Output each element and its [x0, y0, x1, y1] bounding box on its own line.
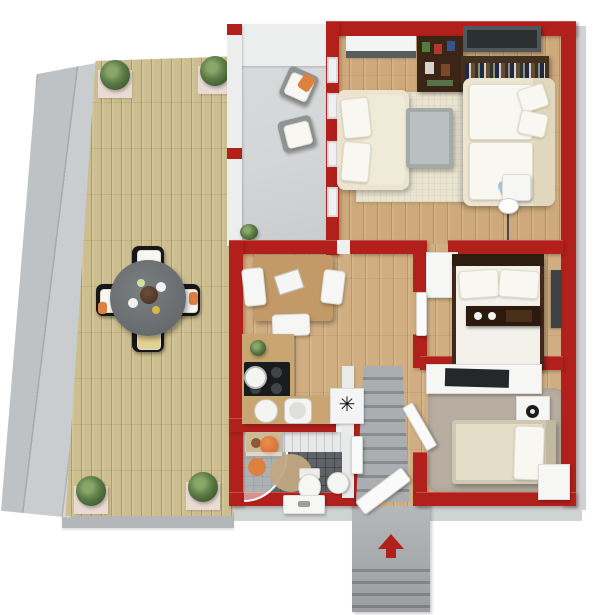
side-table — [502, 174, 531, 201]
planter-top-left — [98, 64, 134, 98]
book — [422, 42, 430, 52]
headboard — [452, 254, 544, 266]
book — [441, 64, 450, 76]
chair-cushion — [283, 120, 314, 150]
patio-west-railing — [227, 24, 242, 246]
sink-round — [254, 399, 278, 423]
entrance-arrow-icon — [378, 534, 404, 560]
sink-bowl — [289, 402, 306, 419]
planter-bottom-left — [74, 478, 110, 514]
counter-plant — [250, 340, 266, 356]
kitchen-door-gap — [337, 240, 350, 254]
toilet — [298, 468, 319, 498]
coat-rack-panel: ✳ — [330, 388, 364, 424]
bowl-green — [137, 279, 145, 287]
bedroom1-bed — [452, 254, 544, 370]
bidet — [327, 472, 349, 494]
shower-mat — [248, 458, 266, 476]
right-outer-wall-face — [576, 26, 586, 510]
bed-pillow — [458, 269, 500, 300]
bedroom2-wardrobe — [538, 464, 570, 500]
book — [427, 80, 453, 86]
window-alcove — [346, 36, 416, 58]
patio-north-wall — [240, 24, 332, 66]
two-seat-sofa — [337, 90, 409, 190]
burner — [271, 367, 282, 378]
bedroom1-door — [416, 292, 427, 336]
patio-small-plant — [240, 224, 258, 240]
bathroom-window-vanity — [283, 495, 325, 514]
lamp-shade — [498, 198, 519, 214]
bathroom-door — [351, 436, 363, 474]
plate — [156, 282, 166, 292]
orange-pillow — [98, 302, 107, 314]
faucet — [298, 501, 310, 507]
window — [327, 187, 338, 217]
dining-chair-west — [241, 267, 267, 307]
cooking-pot — [244, 366, 267, 389]
book — [434, 44, 442, 54]
dining-chair-east — [320, 269, 346, 305]
lamp-glow — [530, 409, 535, 414]
burner — [271, 383, 282, 394]
alcove-window-glass — [346, 51, 416, 58]
book — [447, 41, 455, 51]
plant — [188, 472, 218, 502]
bedroom1-west-wall-upper — [413, 240, 427, 292]
entrance-platform — [352, 502, 430, 612]
east-wall — [561, 21, 576, 506]
west-interior-wall — [229, 240, 243, 506]
bedroom1-wall-mirror — [551, 270, 562, 328]
bed-bench-tray — [466, 306, 540, 326]
tray — [506, 310, 532, 322]
plant — [76, 476, 106, 506]
arrow-head — [378, 534, 404, 549]
coffee-table — [406, 108, 453, 168]
book — [425, 62, 434, 74]
kitchen-counter-left — [242, 334, 294, 398]
window — [327, 57, 338, 83]
mid-wall-center-segment — [350, 240, 416, 254]
mid-wall-west-segment — [229, 240, 337, 254]
laptop — [274, 268, 305, 295]
desk-tv — [445, 368, 509, 388]
bottom-right-outer-wall-face — [418, 504, 582, 521]
plant — [200, 56, 230, 86]
bed-pillow — [498, 269, 540, 300]
table-lamp — [526, 405, 539, 418]
sofa-seat — [365, 95, 405, 185]
cup — [474, 312, 482, 320]
entrance-steps — [352, 560, 430, 612]
tv-panel — [463, 26, 541, 52]
railing-post-cap — [227, 148, 242, 159]
railing-post-cap — [227, 24, 242, 35]
tv-screen — [467, 30, 537, 48]
sink-basin — [284, 398, 312, 424]
cup — [488, 312, 496, 320]
sofa-back-pillow — [340, 141, 371, 183]
coat-rack-icon: ✳ — [339, 389, 356, 421]
sofa-back-pillow — [340, 97, 372, 140]
planter-bottom-right — [186, 474, 222, 510]
bookshelf — [417, 36, 463, 92]
outdoor-dining-set — [96, 246, 200, 352]
plant — [100, 60, 130, 90]
bedroom2-desk — [426, 364, 542, 394]
kitchen-counter-bottom — [242, 396, 336, 424]
bowl-yellow — [152, 306, 160, 314]
plate — [128, 298, 138, 308]
coffee-table-top — [410, 112, 449, 164]
arrow-stem — [386, 548, 396, 558]
orange-pillow — [189, 292, 198, 305]
floor-plan-render: ✳ — [0, 0, 600, 615]
floor-lamp — [496, 198, 520, 244]
lamp-stem — [507, 210, 509, 240]
outdoor-round-table — [110, 260, 186, 336]
